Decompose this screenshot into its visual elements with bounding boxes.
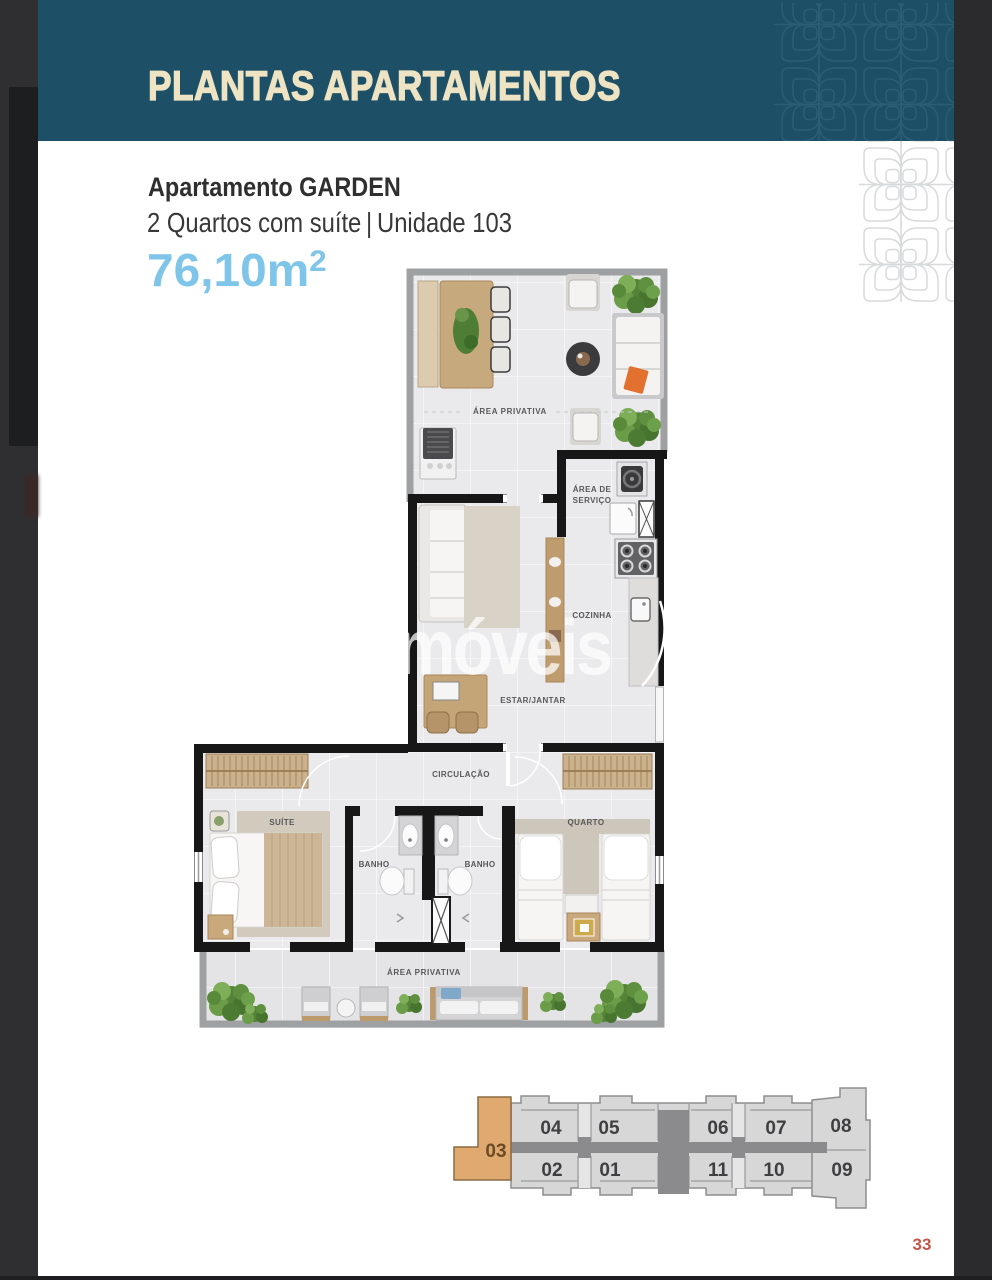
svg-text:10: 10	[763, 1160, 784, 1181]
svg-text:07: 07	[765, 1118, 786, 1139]
svg-text:08: 08	[830, 1116, 851, 1137]
svg-text:ÁREA DE: ÁREA DE	[573, 485, 612, 494]
svg-text:03: 03	[485, 1141, 506, 1162]
svg-text:06: 06	[707, 1118, 728, 1139]
svg-text:CIRCULAÇÃO: CIRCULAÇÃO	[432, 770, 490, 779]
svg-text:ÁREA PRIVATIVA: ÁREA PRIVATIVA	[473, 407, 547, 416]
svg-text:04: 04	[540, 1118, 562, 1139]
svg-text:01: 01	[599, 1160, 621, 1181]
svg-text:QUARTO: QUARTO	[568, 818, 605, 827]
svg-text:ÁREA PRIVATIVA: ÁREA PRIVATIVA	[387, 968, 461, 977]
svg-text:SUÍTE: SUÍTE	[269, 818, 295, 827]
svg-text:BANHO: BANHO	[465, 860, 496, 869]
svg-text:11: 11	[708, 1160, 729, 1181]
svg-text:02: 02	[541, 1160, 562, 1181]
svg-text:09: 09	[831, 1160, 852, 1181]
svg-text:ESTAR/JANTAR: ESTAR/JANTAR	[500, 696, 565, 705]
svg-text:SERVIÇO: SERVIÇO	[573, 496, 612, 505]
svg-text:BANHO: BANHO	[359, 860, 390, 869]
svg-text:05: 05	[598, 1118, 620, 1139]
svg-text:móveis: móveis	[396, 604, 611, 691]
